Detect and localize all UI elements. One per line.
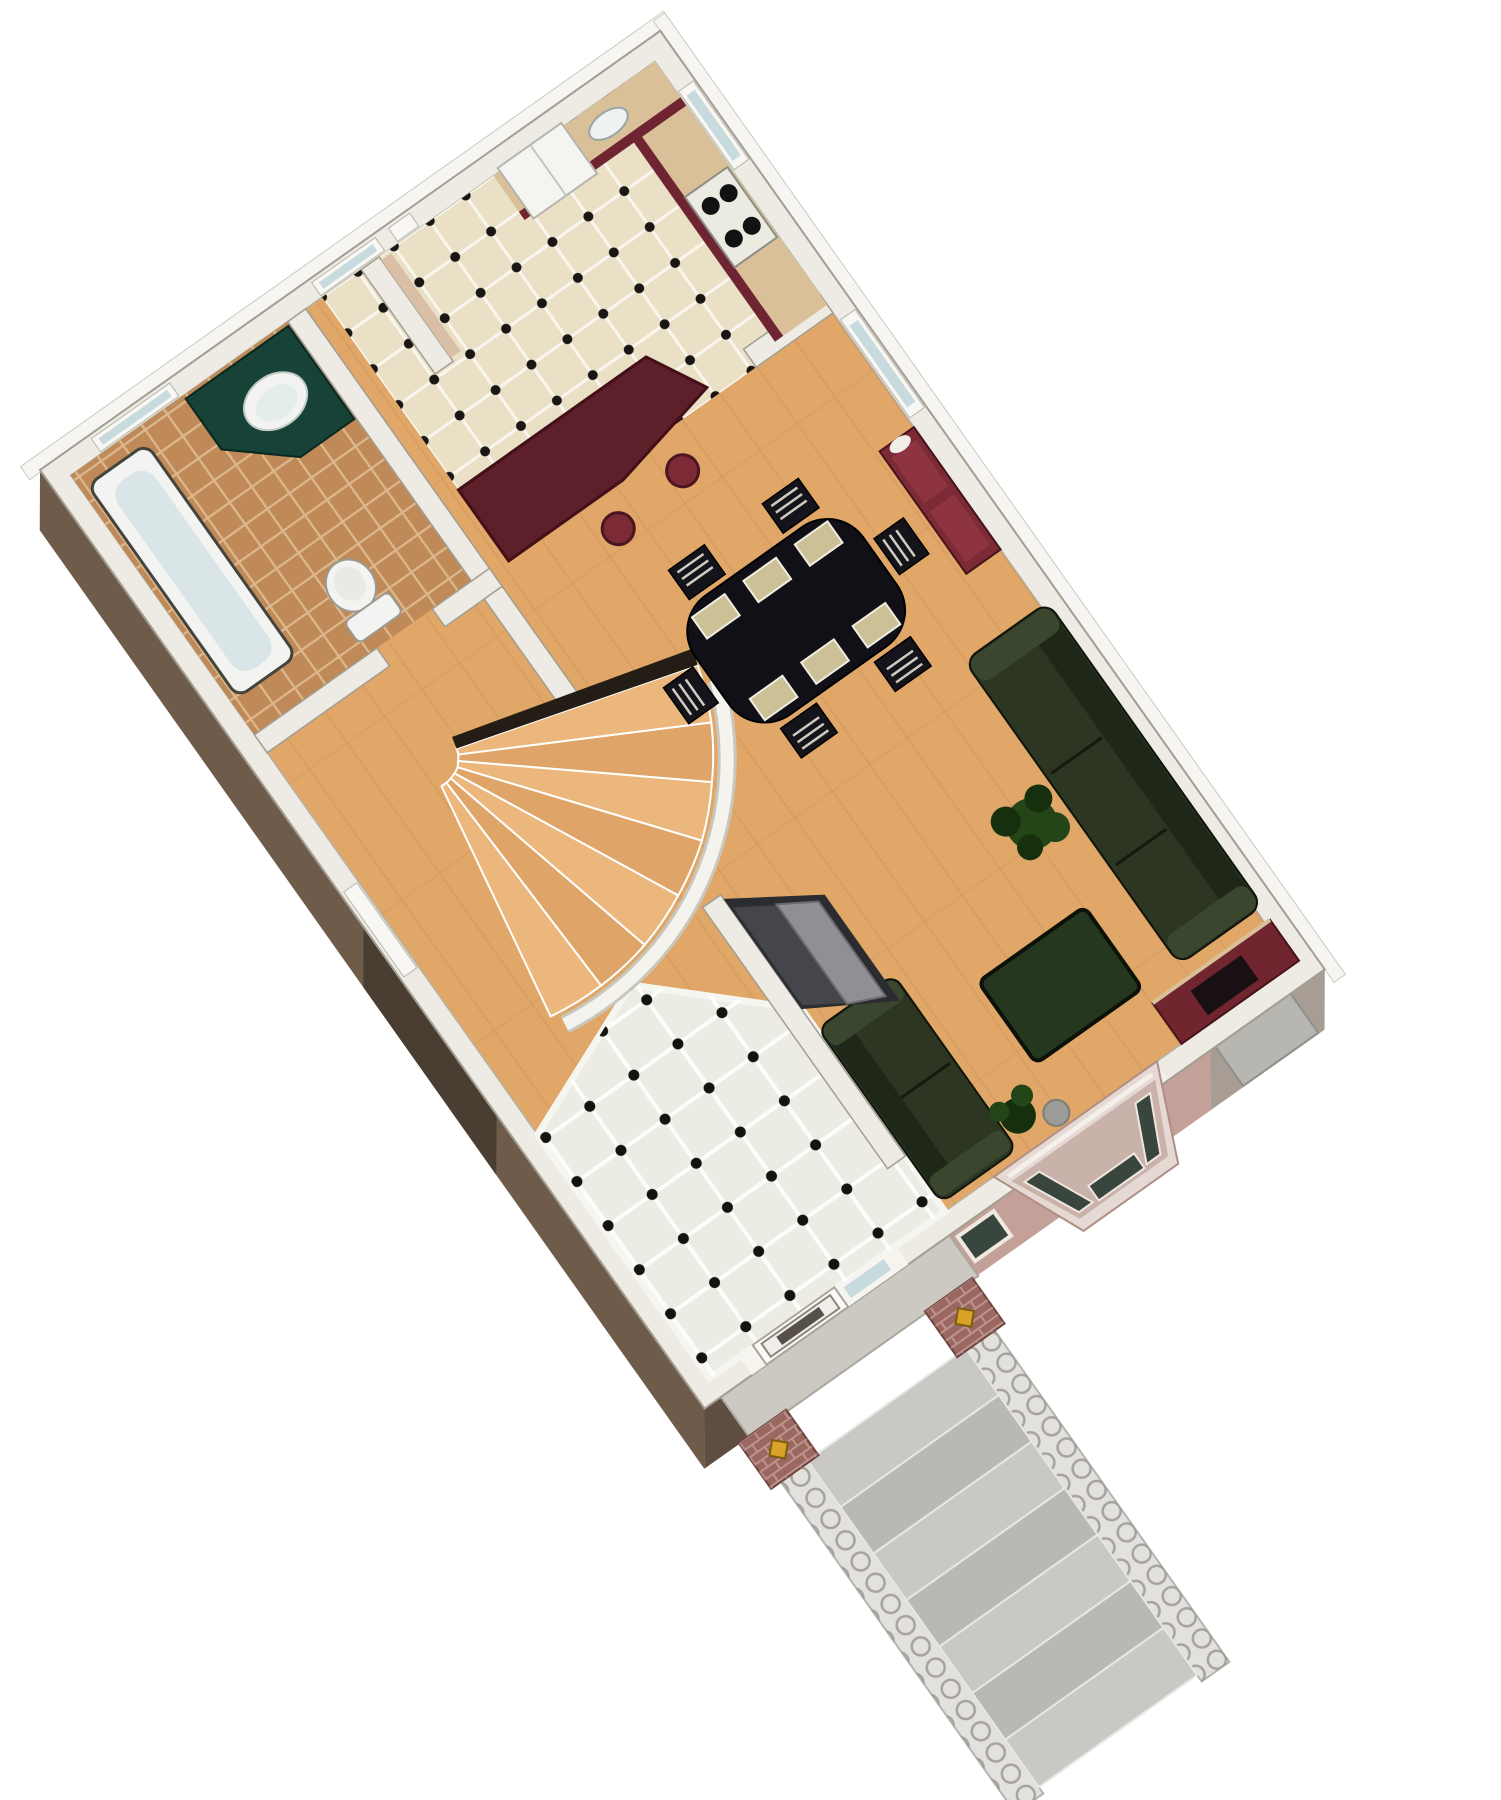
floor-plan-stage [0, 0, 1501, 1800]
house-group [3, 11, 1501, 1800]
porch-sconce-right [955, 1308, 973, 1326]
floor-plan-render [0, 0, 1501, 1800]
porch-sconce-left [769, 1440, 787, 1458]
